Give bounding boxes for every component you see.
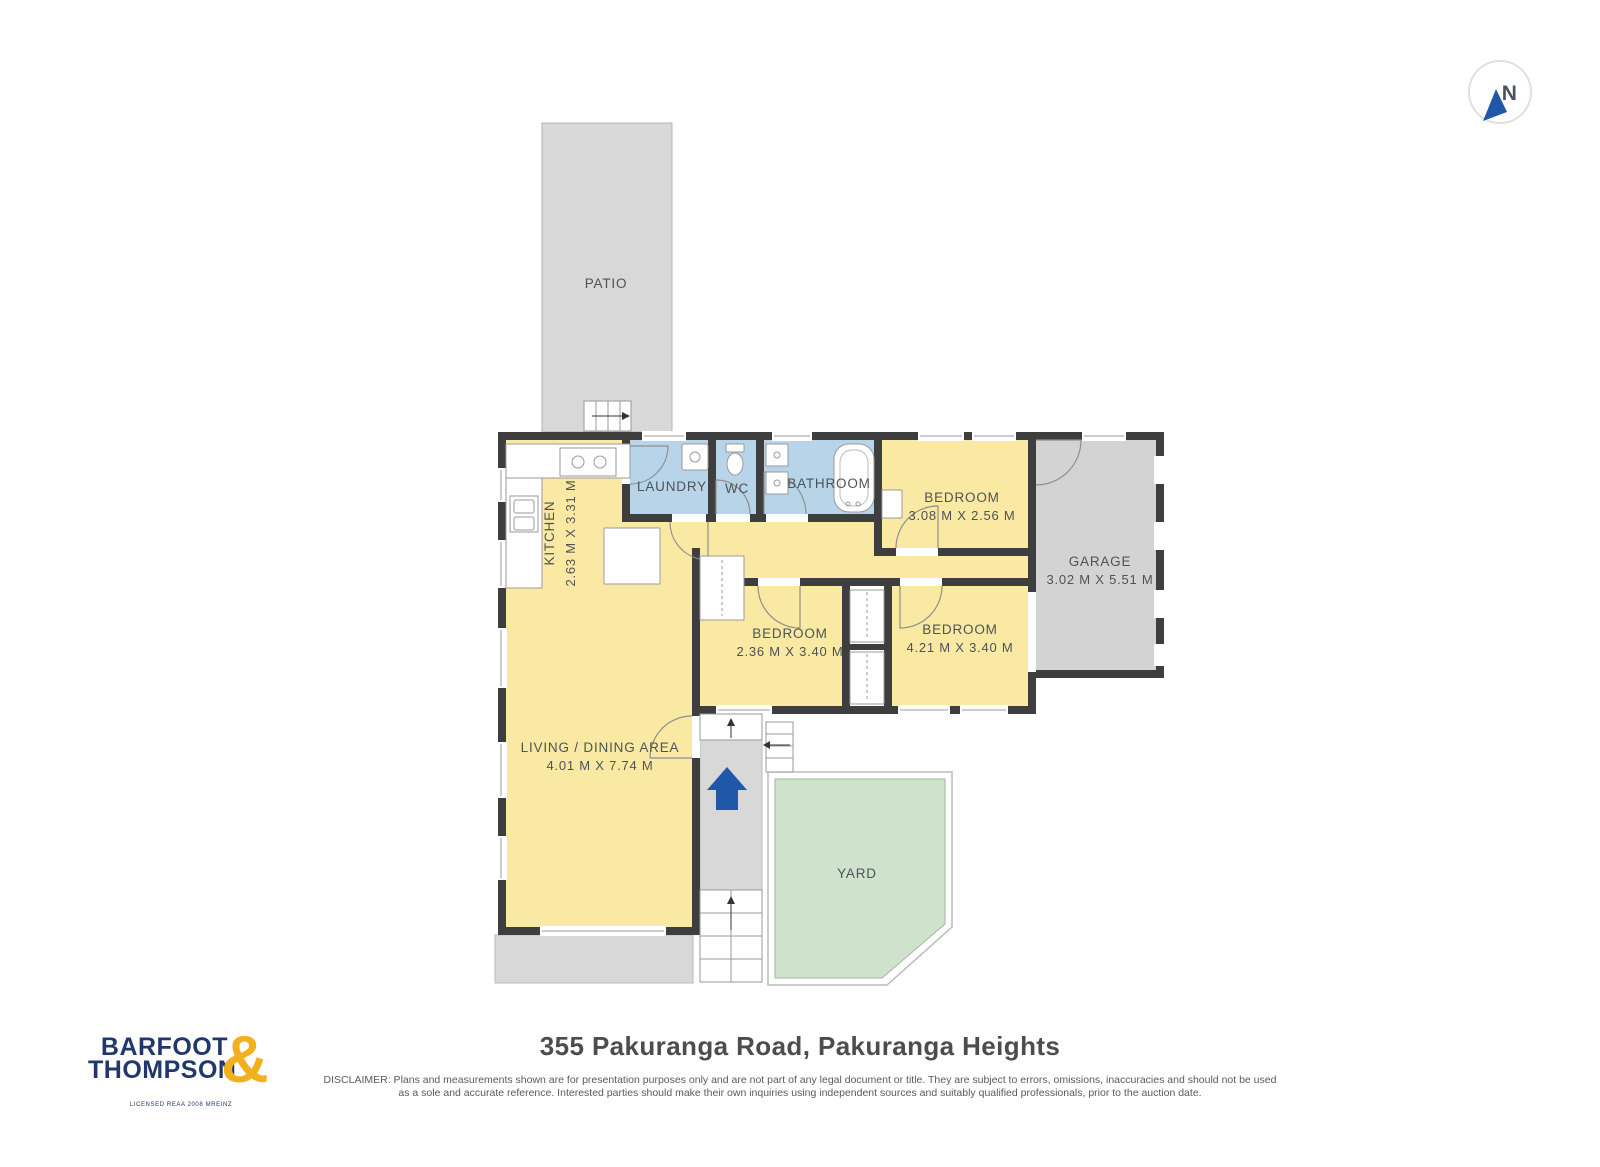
floorplan-page: PATIO LAUNDRY WC BATHROOM BEDROOM 3.08 M… (0, 0, 1600, 1167)
disclaimer-line-1: DISCLAIMER: Plans and measurements shown… (0, 1074, 1600, 1087)
kitchen-dims: 2.63 M X 3.31 M (563, 479, 578, 586)
property-address-title: 355 Pakuranga Road, Pakuranga Heights (0, 1031, 1600, 1062)
entry-landing (700, 714, 762, 740)
bathroom-label: BATHROOM (787, 476, 870, 491)
vanity-icon (766, 444, 788, 466)
bedroom-top-label: BEDROOM (924, 490, 999, 505)
bedroom-mid-dims: 2.36 M X 3.40 M (736, 644, 843, 659)
toilet-icon (727, 453, 743, 475)
bottom-steps (700, 890, 762, 982)
logo-tagline: LICENSED REAA 2008 MREINZ (96, 1102, 266, 1108)
living-dims: 4.01 M X 7.74 M (546, 758, 653, 773)
garage-label: GARAGE (1069, 554, 1132, 569)
stove-burner-icon (594, 456, 606, 468)
closet (882, 490, 902, 518)
kitchen-label: KITCHEN (542, 501, 557, 566)
bedroom-right-label: BEDROOM (922, 622, 997, 637)
bedroom-mid-label: BEDROOM (752, 626, 827, 641)
bedroom-top-dims: 3.08 M X 2.56 M (908, 508, 1015, 523)
kitchen-island (604, 528, 660, 584)
wc-label: WC (725, 481, 749, 496)
laundry-fixtures (682, 444, 708, 470)
wc-fixtures (726, 444, 744, 475)
bedroom-right-dims: 4.21 M X 3.40 M (906, 640, 1013, 655)
laundry-label: LAUNDRY (637, 479, 707, 494)
patio-label: PATIO (585, 276, 628, 291)
yard-label: YARD (837, 866, 877, 881)
disclaimer-text: DISCLAIMER: Plans and measurements shown… (0, 1074, 1600, 1100)
vanity-icon (766, 472, 788, 494)
deck-area (495, 935, 693, 983)
compass: N (1469, 61, 1531, 123)
patio-steps (584, 401, 631, 431)
washing-machine-icon (682, 444, 708, 470)
garage-dims: 3.02 M X 5.51 M (1046, 572, 1153, 587)
floorplan-drawing: PATIO LAUNDRY WC BATHROOM BEDROOM 3.08 M… (0, 0, 1600, 1167)
compass-n-label: N (1502, 82, 1518, 105)
side-steps (763, 722, 793, 772)
living-label: LIVING / DINING AREA (521, 740, 680, 755)
disclaimer-line-2: as a sole and accurate reference. Intere… (0, 1087, 1600, 1100)
stove-burner-icon (572, 456, 584, 468)
